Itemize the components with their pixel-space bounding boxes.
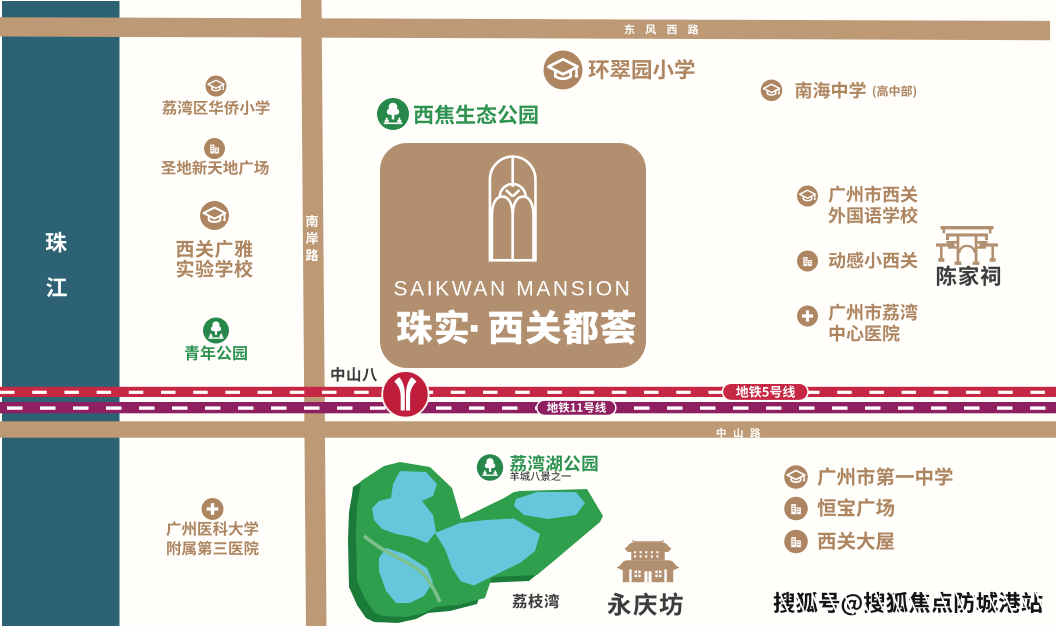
svg-text:SAIKWAN MANSION: SAIKWAN MANSION — [394, 278, 633, 301]
